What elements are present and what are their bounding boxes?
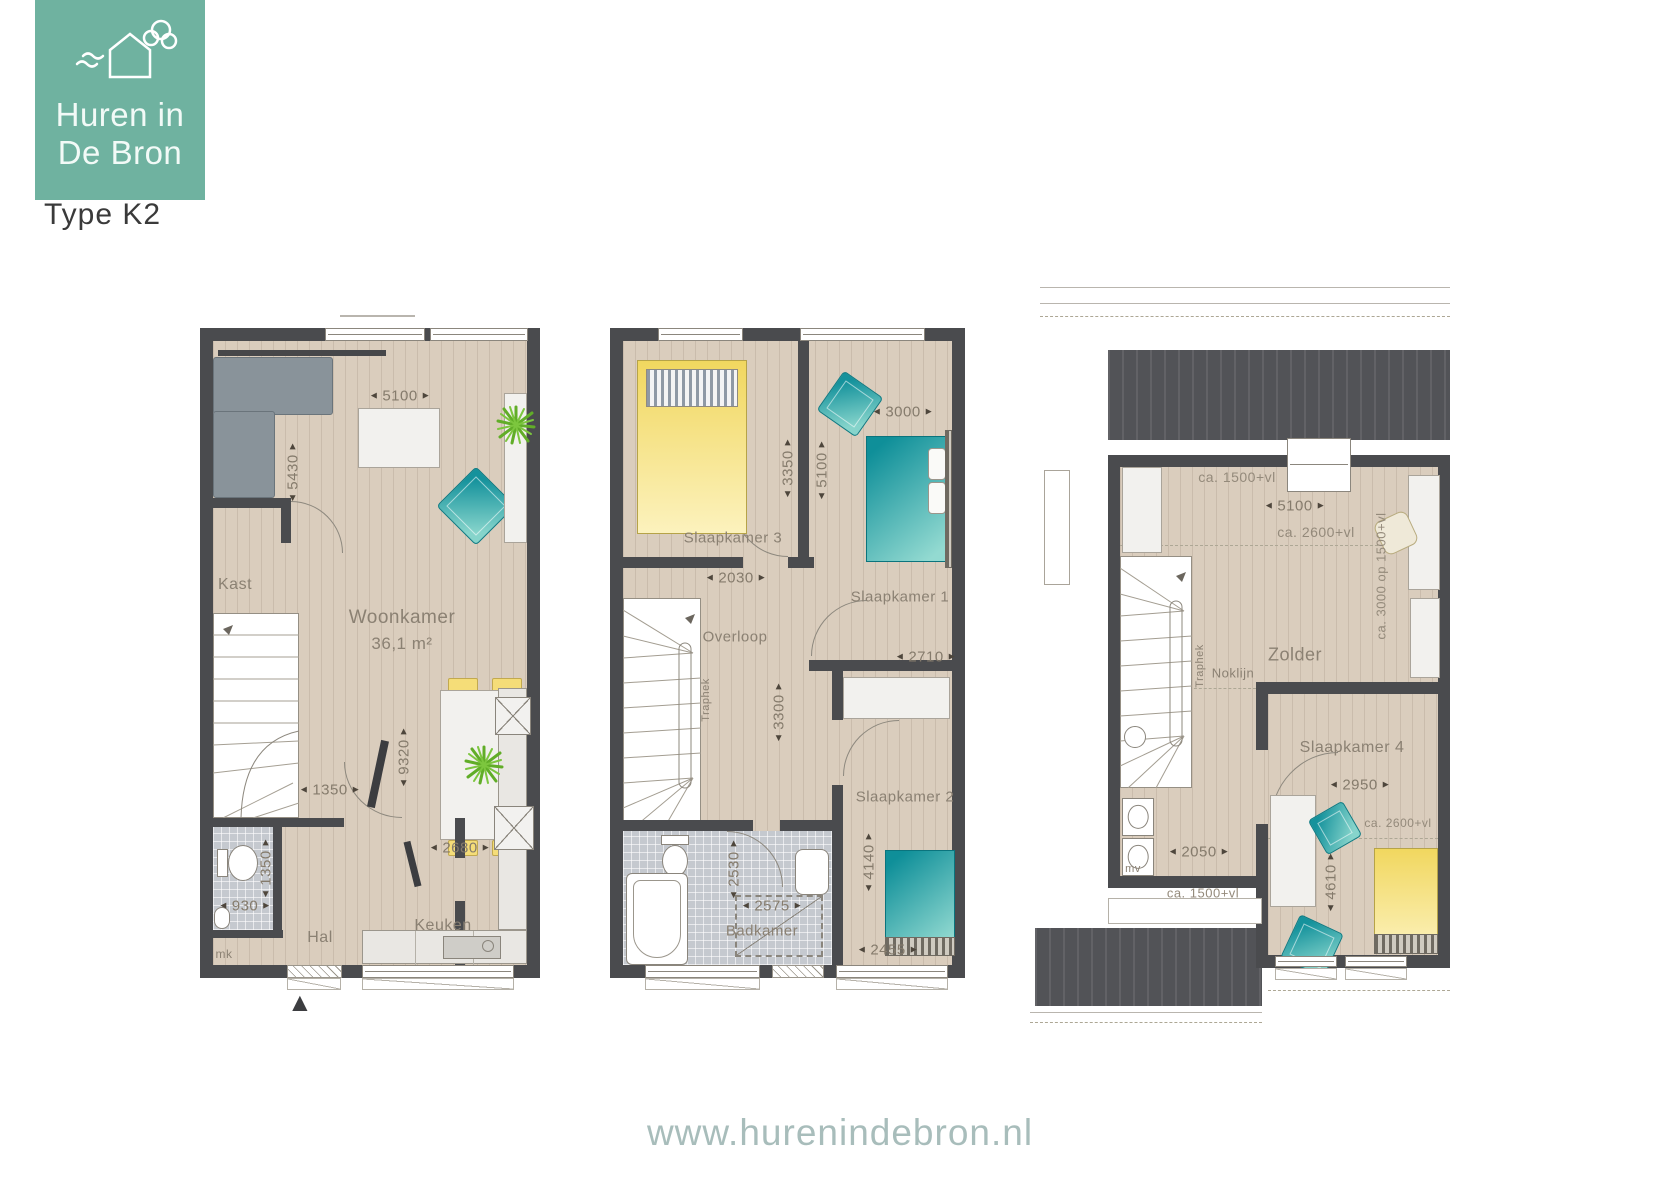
room-label-badkamer: Badkamer [726,923,798,940]
dim-arrow-left-icon: ◄ [864,883,874,893]
dim-arrow-right-icon: ► [1326,851,1336,861]
brand-name-line2: De Bron [35,134,205,172]
dim-value: 2030 [718,570,753,587]
toilet [228,845,258,881]
dimension-s3-width: ◄2030► [705,570,767,587]
door-leaf [404,841,422,887]
room-label-slaapkamer3: Slaapkamer 3 [684,530,783,547]
window-sill [645,978,760,990]
dim-arrow-left-icon: ◄ [705,573,715,583]
dim-arrow-right-icon: ► [351,785,361,795]
level-annotation: ca. 1500+vl [1167,886,1239,901]
dim-arrow-left-icon: ◄ [429,843,439,853]
wall-segment [623,820,753,831]
washing-machine [1122,798,1154,836]
dim-value: 2455 [870,942,905,959]
dim-value: 3350 [780,450,797,485]
level-annotation: ca. 2600+vl [1277,524,1355,540]
wall-segment [780,820,843,831]
dim-arrow-right-icon: ► [864,831,874,841]
kitchen-counter [362,930,527,964]
wall-segment [1108,455,1450,467]
dim-arrow-right-icon: ► [774,681,784,691]
dimension-s1-depth: ◄5100► [814,439,831,501]
floor-plan-ground: ▲ ◄5100► ◄5430► ◄9320► ◄1350► ◄1350► ◄93… [200,328,540,978]
dim-arrow-left-icon: ◄ [1329,780,1339,790]
room-label-hal: Hal [307,929,333,947]
dim-arrow-left-icon: ◄ [288,493,298,503]
dormer-window [1287,438,1351,492]
dim-value: 2530 [726,851,743,886]
dim-arrow-right-icon: ► [399,726,409,736]
eaves-dashed-line [1040,316,1450,317]
dim-value: 5100 [814,452,831,487]
dim-arrow-left-icon: ◄ [774,733,784,743]
wall-segment [213,498,291,508]
dim-arrow-right-icon: ► [261,901,271,911]
level-annotation: ca. 1500+vl [1198,469,1276,485]
floor-plan-first: ◄3350► ◄5100► ◄3000► ◄2030► ◄2710► ◄3300… [610,328,965,978]
staircase [1120,556,1192,788]
sofa [213,357,333,415]
dim-value: 2680 [442,840,477,857]
dim-arrow-left-icon: ◄ [729,890,739,900]
bed-pillow [646,369,738,407]
room-label-slaapkamer1: Slaapkamer 1 [851,589,950,606]
door-threshold [772,965,824,978]
dim-arrow-left-icon: ◄ [399,778,409,788]
room-label-traphek: Traphek [1194,644,1206,687]
vent-mark [340,315,415,317]
bed-headboard [1374,934,1438,954]
room-label-overloop: Overloop [703,629,768,646]
window [645,965,760,978]
dim-arrow-left-icon: ◄ [895,652,905,662]
dim-value: 5430 [285,454,302,489]
wall-segment [1256,694,1268,750]
wall-segment [798,341,809,557]
eaves-line [1040,287,1450,288]
dimension-bad-width: ◄2575► [741,898,803,915]
brand-name: Huren in De Bron [35,96,205,172]
water-tap [1124,726,1146,748]
room-area-woonkamer: 36,1 m² [371,634,432,654]
wardrobe [843,677,950,719]
dimension-s2-width: ◄2455► [857,942,919,959]
dimension-overloop-depth: ◄3300► [771,681,788,743]
door-arc [843,720,899,776]
dim-value: 2050 [1181,844,1216,861]
toilet [217,849,228,877]
dim-value: 2575 [754,898,789,915]
dimension-s4-depth: ◄4610► [1323,851,1340,913]
dim-value: 930 [232,898,259,915]
dimension-sofa-wall: ◄5430► [285,441,302,503]
wall-segment [1256,824,1268,955]
brand-name-line1: Huren in [35,96,205,134]
house-with-smoke-icon [55,14,185,94]
entrance-marker-icon: ▲ [287,989,313,1015]
brand-logo: Huren in De Bron [35,0,205,200]
dim-value: 4610 [1323,864,1340,899]
stove [494,806,534,850]
plant-icon [462,743,506,787]
dim-arrow-right-icon: ► [757,573,767,583]
dimension-attic-width: ◄5100► [1264,498,1326,515]
room-label-mv: mv [1125,863,1141,875]
dimension-s3-depth: ◄3350► [780,437,797,499]
entrance-door-threshold [287,965,342,978]
dimension-wc-depth: ◄1350► [258,837,275,899]
room-label-slaapkamer2: Slaapkamer 2 [856,789,955,806]
window-sill [362,978,514,990]
window-sill [1275,968,1337,980]
bed-pillow [928,482,946,514]
dim-arrow-left-icon: ◄ [741,901,751,911]
dim-value: 9320 [396,739,413,774]
dimension-s2-depth: ◄4140► [861,831,878,893]
dim-arrow-right-icon: ► [793,901,803,911]
dim-arrow-left-icon: ◄ [369,391,379,401]
plant-icon [494,403,538,447]
floorplan-sheet: Huren in De Bron Type K2 [0,0,1680,1188]
bed-pillow [928,448,946,480]
kitchen-cabinet [495,697,531,735]
sideboard-under-window [218,350,386,356]
dim-arrow-right-icon: ► [817,439,827,449]
dim-arrow-left-icon: ◄ [218,901,228,911]
room-label-kast: Kast [218,576,252,594]
website-url: www.hurenindebron.nl [647,1112,1033,1154]
dim-arrow-right-icon: ► [421,391,431,401]
dim-arrow-right-icon: ► [261,837,271,847]
dim-value: 1350 [312,782,347,799]
dimension-woonkamer-width: ◄5100► [369,388,431,405]
dim-arrow-right-icon: ► [1316,501,1326,511]
window [836,965,948,978]
window-sill [1345,968,1407,980]
staircase [623,598,701,830]
room-label-woonkamer: Woonkamer [349,607,456,629]
dimension-s4-width: ◄2950► [1329,777,1391,794]
eaves-line [1030,1012,1262,1013]
roof-gutter [1108,898,1262,924]
dim-arrow-left-icon: ◄ [1264,501,1274,511]
desk [1270,795,1316,907]
wall-segment [832,831,843,965]
dim-arrow-left-icon: ◄ [299,785,309,795]
dim-arrow-right-icon: ► [1381,780,1391,790]
dim-value: 2710 [908,649,943,666]
window [1275,956,1337,967]
dimension-closet: ◄2710► [895,649,957,666]
cabinet [1410,598,1440,678]
eaves-line [1040,303,1450,304]
toilet [661,835,689,845]
room-label-slaapkamer4: Slaapkamer 4 [1300,739,1405,757]
dimension-kitchen: ◄2680► [429,840,491,857]
eaves-dashed-line [1268,990,1450,991]
dimension-s1-width: ◄3000► [872,404,934,421]
storage-cabinet [1122,467,1162,553]
dim-value: 3300 [771,694,788,729]
dim-arrow-right-icon: ► [947,652,957,662]
dimension-depth: ◄9320► [396,726,413,788]
single-bed [637,360,747,534]
dim-arrow-right-icon: ► [288,441,298,451]
dim-arrow-left-icon: ◄ [872,407,882,417]
dim-arrow-left-icon: ◄ [857,945,867,955]
roof-slope-front [1108,350,1450,440]
dim-arrow-right-icon: ► [924,407,934,417]
window [325,328,425,341]
dim-arrow-right-icon: ► [1220,847,1230,857]
dim-arrow-right-icon: ► [729,838,739,848]
wall-segment [281,498,291,543]
wall-segment [788,557,814,568]
dim-arrow-right-icon: ► [909,945,919,955]
dim-arrow-left-icon: ◄ [783,489,793,499]
window [800,328,925,341]
level-annotation: ca. 3000 op 1500+vl [1374,513,1389,640]
wall-segment [213,930,283,938]
washbasin [795,849,829,895]
roof-slope-rear [1035,928,1262,1006]
wall-segment [832,660,843,720]
room-label-mk: mk [216,947,233,961]
dim-value: 2950 [1342,777,1377,794]
level-annotation: ca. 2600+vl [1364,816,1431,830]
dim-arrow-right-icon: ► [783,437,793,447]
window [658,328,743,341]
wall-segment [623,557,743,568]
bed-headboard [945,430,952,568]
dimension-wc-width: ◄930► [218,898,271,915]
bathtub [626,873,688,965]
dimension-attic-left: ◄2050► [1168,844,1230,861]
dim-value: 1350 [258,850,275,885]
wall-segment [1108,455,1120,888]
wall-segment [1256,682,1450,694]
dim-value: 4140 [861,844,878,879]
dimension-hal: ◄1350► [299,782,361,799]
kitchen-sink [443,936,501,959]
sofa [213,411,275,498]
room-label-zolder: Zolder [1268,645,1322,666]
ridge-label-noklijn: Noklijn [1212,666,1255,681]
window [362,965,514,978]
dim-arrow-right-icon: ► [481,843,491,853]
dim-value: 3000 [885,404,920,421]
dim-value: 5100 [1277,498,1312,515]
dim-arrow-left-icon: ◄ [817,491,827,501]
door-arc [811,600,867,656]
dim-arrow-left-icon: ◄ [1168,847,1178,857]
dim-value: 5100 [382,388,417,405]
staircase [213,613,299,818]
window [1345,956,1407,967]
dim-arrow-left-icon: ◄ [1326,903,1336,913]
skylight [1044,470,1070,585]
dimension-bad-depth: ◄2530► [726,838,743,900]
counter-divider [415,931,416,965]
room-label-traphek: Traphek [700,678,712,721]
window [430,328,528,341]
door-arc [291,501,343,553]
window-sill [836,978,948,990]
eaves-dashed-line [1030,1022,1262,1023]
wall-segment [282,818,344,827]
coffee-table [358,408,440,468]
dwelling-type-label: Type K2 [44,198,161,232]
room-label-keuken: Keuken [414,917,471,935]
